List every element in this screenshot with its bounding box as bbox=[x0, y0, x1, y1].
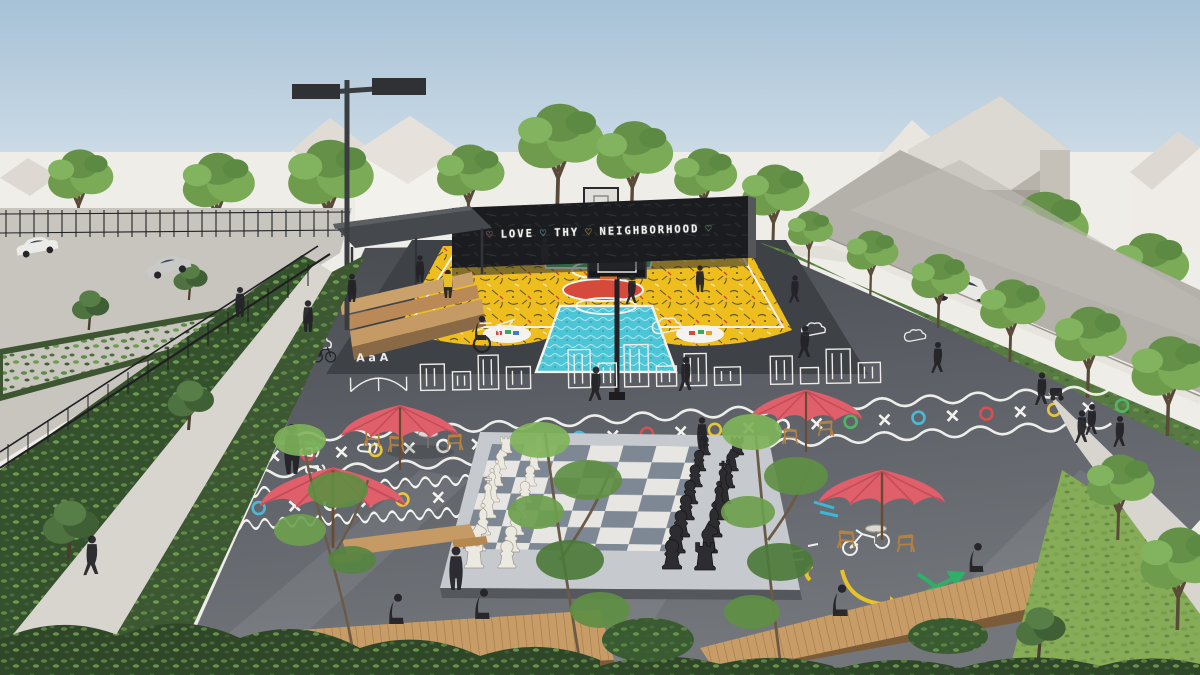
scene-canvas: A a A bbox=[0, 0, 1200, 675]
mural-wall bbox=[452, 196, 756, 276]
mural-letters: A a A bbox=[356, 351, 389, 365]
park-rendering: A a A bbox=[0, 0, 1200, 675]
